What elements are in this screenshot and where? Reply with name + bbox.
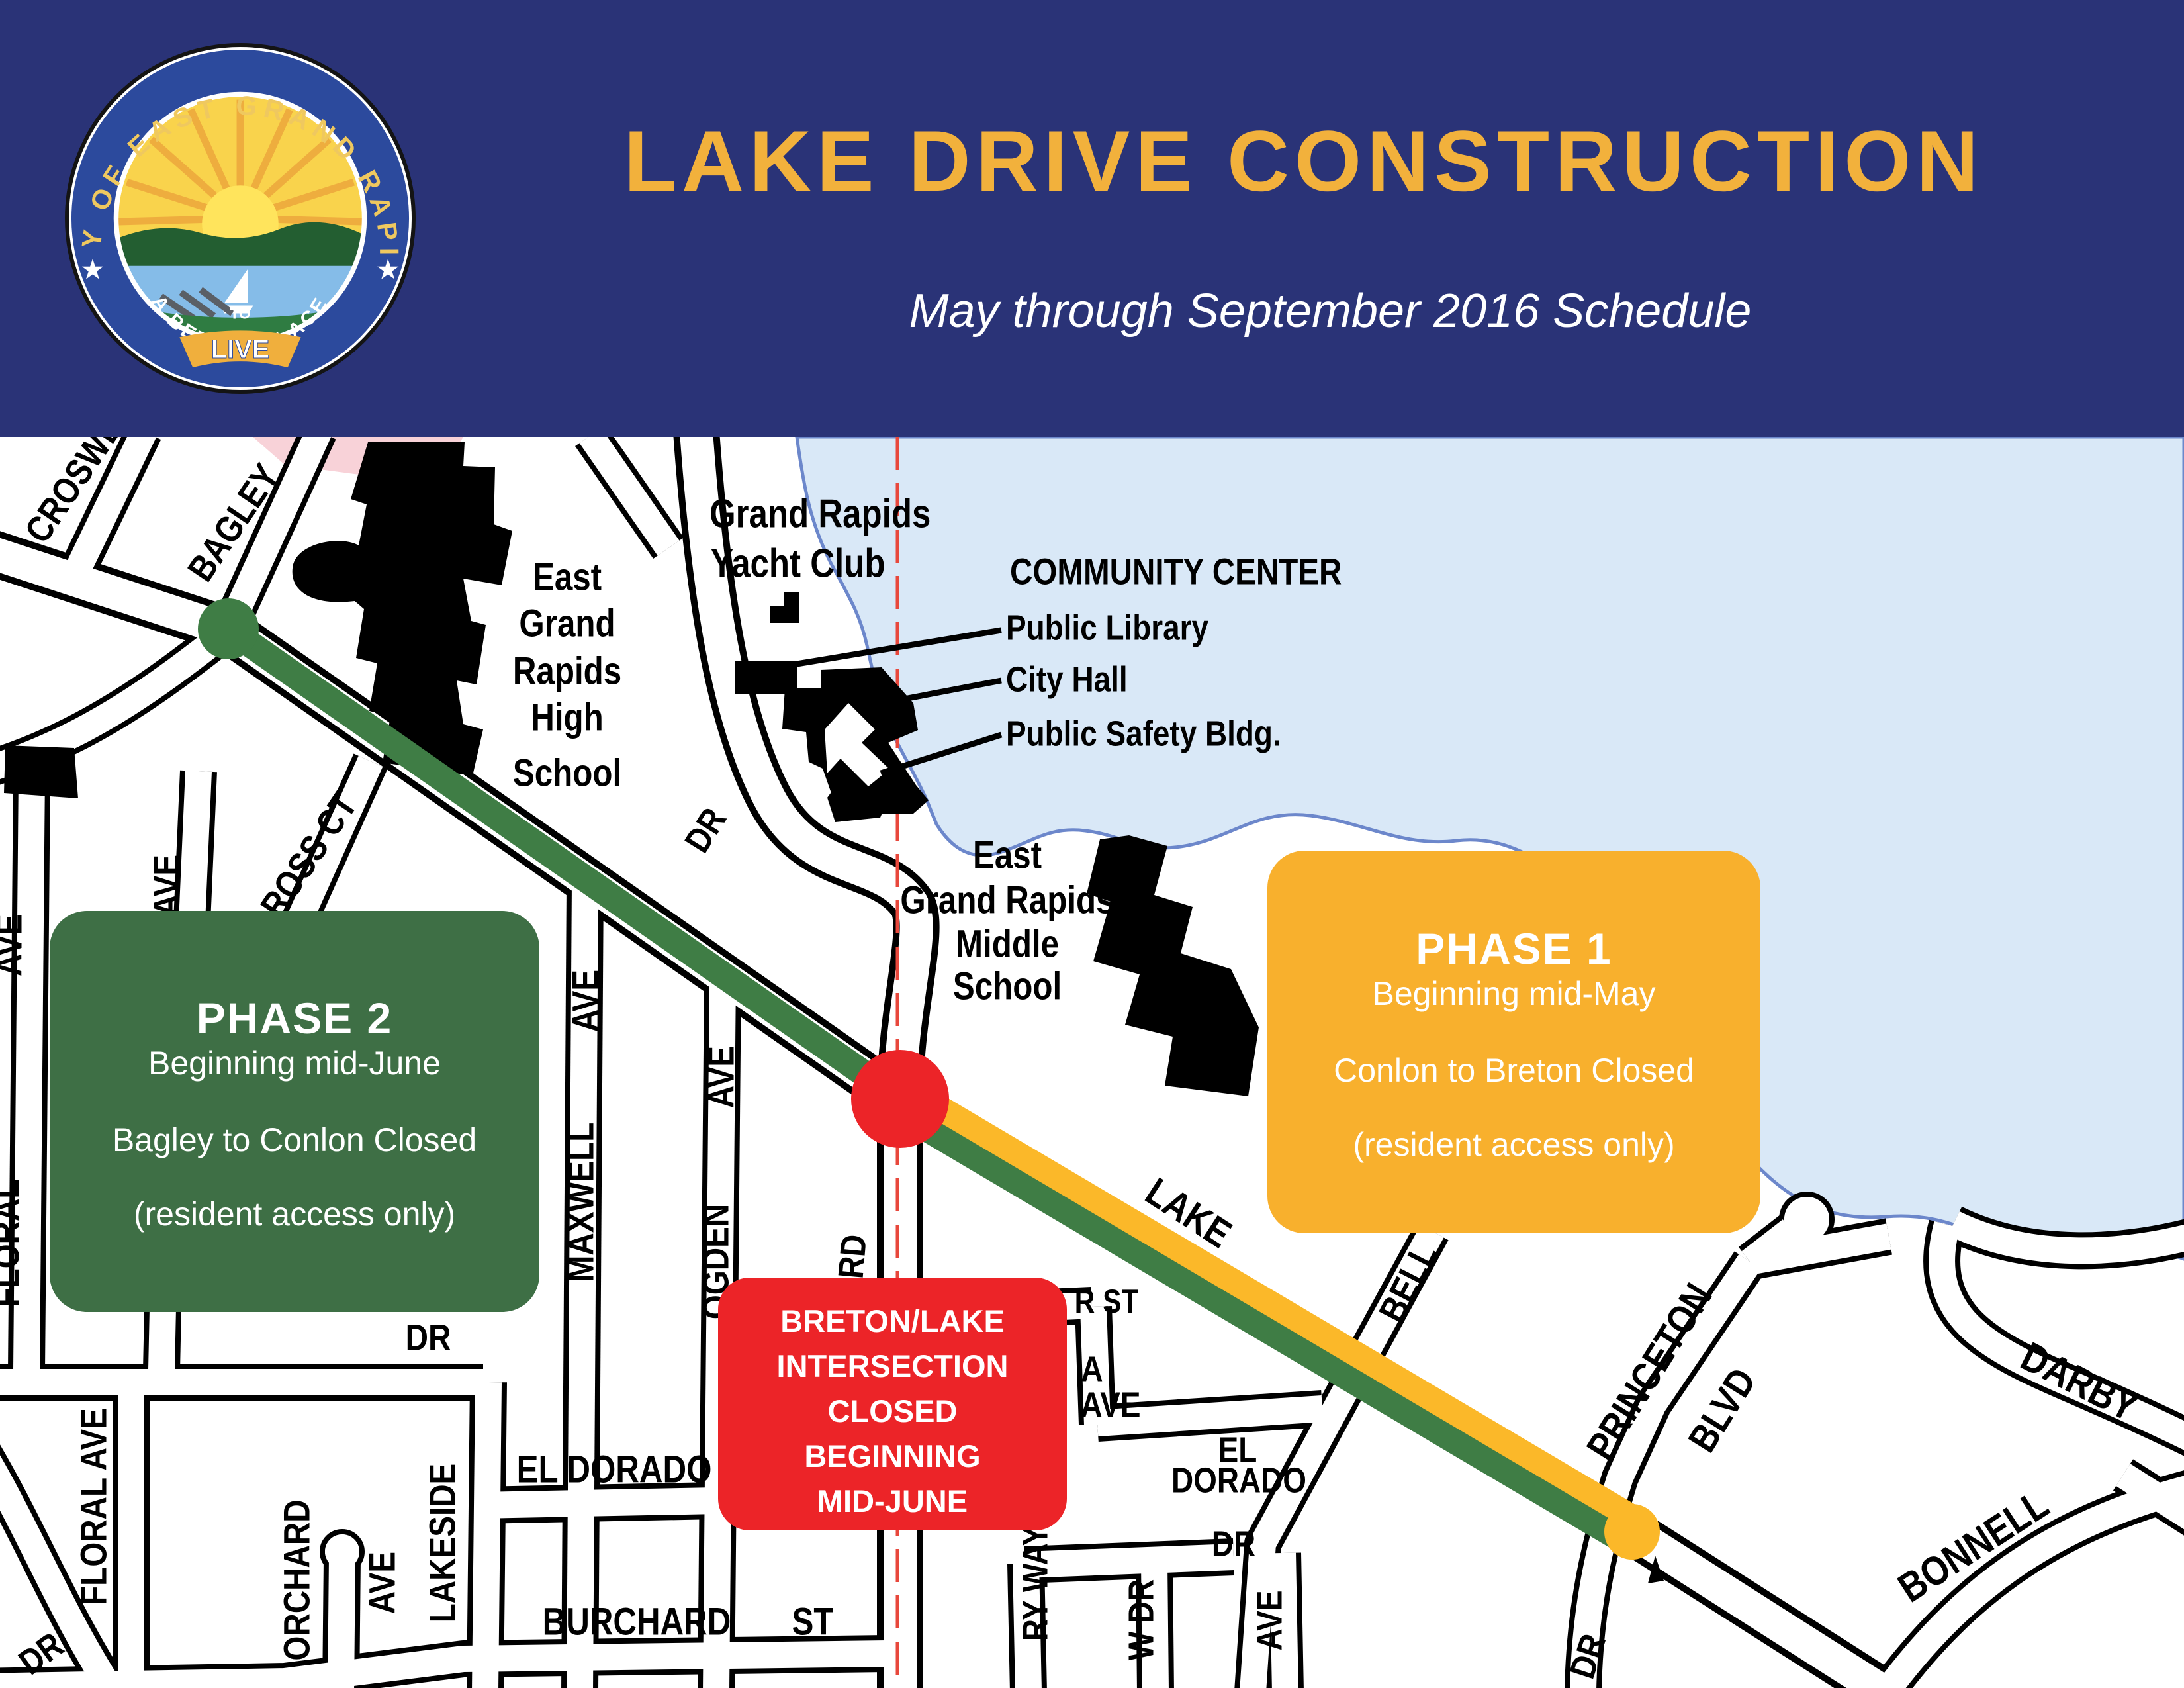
place-label-high-school-5: School — [513, 752, 621, 795]
street-label-r-st: R ST — [1075, 1283, 1139, 1320]
building-small-west — [4, 745, 78, 798]
place-label-community-center: COMMUNITY CENTER — [1010, 551, 1342, 592]
phase-1-subtitle: Beginning mid-May — [1267, 974, 1760, 1013]
street-label-darby: DARBY — [2014, 1334, 2145, 1430]
street-label-ave-left: AVE — [0, 914, 30, 976]
street-label-maxwell: MAXWELL — [561, 1123, 602, 1282]
place-label-high-school-4: High — [531, 696, 604, 739]
phase-1-detail: Conlon to Breton Closed — [1267, 1051, 1760, 1090]
street-label-dr-left: DR — [406, 1317, 451, 1358]
street-label-burchard: BURCHARD — [543, 1601, 731, 1644]
street-label-dr-e: DR — [1212, 1524, 1255, 1564]
closure-line-1: BRETON/LAKE — [718, 1299, 1067, 1344]
street-label-w-dr: W DR — [1121, 1579, 1161, 1660]
place-label-yacht-club-1: Grand Rapids — [709, 492, 931, 536]
closure-line-3: CLOSED — [718, 1389, 1067, 1434]
place-label-yacht-club-2: Yacht Club — [711, 541, 885, 586]
street-label-el-dorado-w: EL DORADO — [517, 1448, 712, 1491]
intersection-closure-callout: BRETON/LAKE INTERSECTION CLOSED BEGINNIN… — [718, 1278, 1067, 1530]
phase-2-access: (resident access only) — [50, 1194, 539, 1234]
phase-2-detail: Bagley to Conlon Closed — [50, 1120, 539, 1160]
street-label-ry-way: RY WAY — [1015, 1526, 1055, 1641]
star-icon-right: ★ — [375, 254, 400, 285]
street-label-bell: BELL — [1371, 1237, 1445, 1329]
place-label-high-school-1: East — [533, 556, 602, 599]
building-yacht-club — [770, 592, 799, 623]
phase-1-access: (resident access only) — [1267, 1125, 1760, 1164]
header-banner: CITY OF EAST GRAND RAPIDS A BETTER PLACE… — [0, 0, 2184, 437]
place-label-high-school-2: Grand — [519, 602, 615, 645]
street-label-orchard: ORCHARD — [277, 1499, 318, 1660]
star-icon-left: ★ — [80, 254, 105, 285]
seal-motto-bottom: LIVE — [211, 335, 270, 364]
phase-2-callout: PHASE 2 Beginning mid-June Bagley to Con… — [50, 911, 539, 1312]
closure-line-5: MID-JUNE — [718, 1479, 1067, 1524]
street-label-ave-mid: AVE — [146, 855, 187, 917]
place-label-middle-school-1: East — [973, 834, 1042, 877]
building-middle-school — [1087, 835, 1259, 1096]
phase-1-title: PHASE 1 — [1267, 923, 1760, 974]
place-label-middle-school-3: Middle — [956, 923, 1059, 966]
street-label-lakeside: LAKESIDE — [422, 1464, 463, 1623]
closure-line-4: BEGINNING — [718, 1434, 1067, 1479]
street-label-a-ave: AVE — [1081, 1385, 1141, 1425]
street-label-el-dorado-e2: DORADO — [1171, 1460, 1306, 1500]
street-label-orchard-ave: AVE — [362, 1552, 403, 1614]
street-label-dr-curve: DR — [677, 801, 734, 859]
phase2-start-dot — [198, 598, 259, 659]
phase1-end-dot — [1604, 1504, 1660, 1560]
place-label-middle-school-4: School — [953, 965, 1062, 1008]
phase-2-subtitle: Beginning mid-June — [50, 1043, 539, 1083]
construction-map: CROSWELLBAGLEYROSS CTAVEAVEFLORALMAXWELL… — [0, 437, 2184, 1688]
street-label-ave-e: AVE — [1250, 1591, 1289, 1651]
street-label-maxwell-ave: AVE — [565, 970, 606, 1032]
street-label-a: A — [1081, 1349, 1103, 1389]
page-title: LAKE DRIVE CONSTRUCTION — [424, 105, 2184, 217]
street-label-breton-rd: RD — [831, 1233, 874, 1280]
seal-motto-mid: TO — [230, 305, 250, 322]
place-label-public-library: Public Library — [1006, 608, 1208, 647]
place-label-public-safety: Public Safety Bldg. — [1006, 714, 1281, 753]
street-label-floral-ave: FLORAL AVE — [73, 1408, 114, 1605]
place-label-middle-school-2: Grand Rapids — [900, 879, 1114, 922]
city-seal: CITY OF EAST GRAND RAPIDS A BETTER PLACE… — [65, 42, 416, 395]
phase-2-title: PHASE 2 — [50, 993, 539, 1043]
street-label-burchard-st: ST — [792, 1601, 834, 1644]
phase-1-callout: PHASE 1 Beginning mid-May Conlon to Bret… — [1267, 851, 1760, 1233]
place-label-city-hall: City Hall — [1006, 659, 1128, 699]
closure-line-2: INTERSECTION — [718, 1344, 1067, 1389]
page-subtitle: May through September 2016 Schedule — [424, 278, 2184, 344]
street-label-ogden-ave: AVE — [701, 1046, 742, 1108]
place-label-high-school-3: Rapids — [513, 650, 621, 693]
street-label-floral-left: FLORAL — [0, 1180, 27, 1307]
breton-lake-intersection-dot — [851, 1050, 949, 1148]
